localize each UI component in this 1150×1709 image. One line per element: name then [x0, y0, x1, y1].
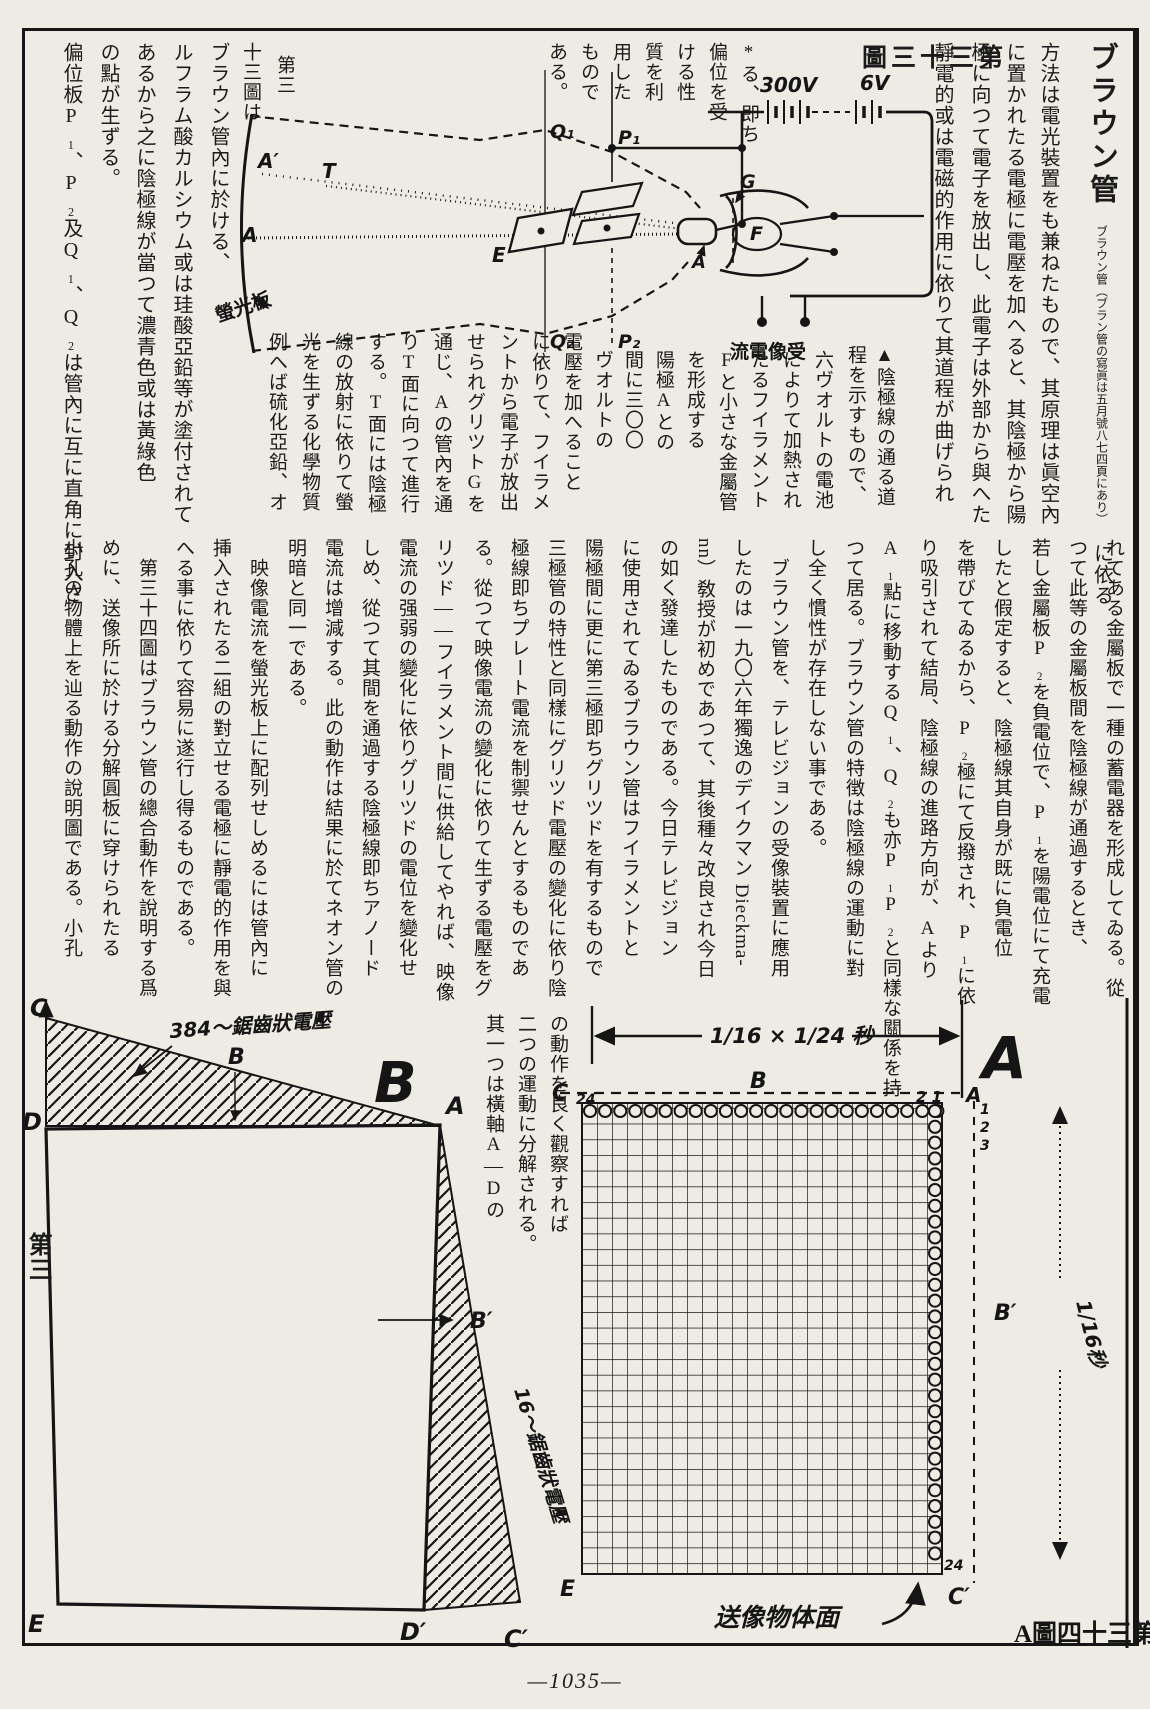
- label-c-prime: C′: [948, 1585, 970, 1610]
- margin-chapter-label: 第三: [24, 1232, 49, 1282]
- text-column: の點が生ずる。: [82, 42, 118, 207]
- text-column: したと假定すると、陰極線其自身が既に負電位: [976, 538, 1011, 1012]
- label-a: A: [444, 1092, 465, 1120]
- title-note: ブラウン管（ブラン管の寫眞は五月號八七四頁にあり）: [1094, 225, 1108, 525]
- text-column: 挿入されたる二組の對立せる電極に靜電的作用を與: [195, 538, 230, 1012]
- figure34a-raster-diagram: 1/16 × 1/24 秒 A C 24 B 2 1 A 24 E C′ 1 2…: [552, 998, 1140, 1660]
- title-column: ブラウン管 ブラウン管（ブラン管の寫眞は五月號八七四頁にあり） に依る: [1086, 42, 1116, 530]
- label-b-prime: B′: [994, 1301, 1017, 1326]
- text-column: あるから之に陰極線が當つて濃青色或は黃綠色: [118, 42, 154, 526]
- text-column: する。T面には陰極: [353, 332, 385, 522]
- label-c: C: [30, 994, 48, 1022]
- text-column: ヴオルトの: [580, 350, 612, 520]
- text-column: めに、送像所に於ける分解圓板に穿けられたる: [84, 538, 119, 1012]
- text-column: 偏位板P₁、P₂及Q₁、Q₂は管內に互に直角に封入さ: [45, 42, 81, 526]
- text-column: たるフイラメント: [736, 350, 768, 520]
- text-column: 電壓を加へること: [549, 332, 581, 522]
- text-column: つて此等の金屬板間を陰極線が通過するとき、: [1051, 538, 1086, 1012]
- label-d: D: [22, 1108, 42, 1136]
- anode-tube: [678, 219, 716, 244]
- wire-node: [738, 144, 746, 152]
- label-c-prime: C′: [504, 1625, 529, 1653]
- label-e: E: [560, 1577, 575, 1602]
- text-column: によりて加熱され: [768, 350, 800, 520]
- label-g: G: [740, 171, 756, 193]
- label-b: B: [228, 1045, 245, 1070]
- text-column: を帶びてゐるから、P₂極にて反撥され、P₁に依: [939, 538, 974, 1012]
- row-number-1: 1: [980, 1102, 990, 1118]
- text-column: しめ、從つて其間を通過する陰極線即ちアノード: [344, 538, 379, 1012]
- label-d-prime: D′: [400, 1618, 427, 1646]
- filament-lead: [780, 244, 834, 252]
- label-a: A: [964, 1083, 981, 1107]
- text-column: ントから電子が放出: [485, 332, 517, 522]
- text-column: に依りて、フイラメ: [517, 332, 549, 522]
- text-column: 第三十四圖はブラウン管の總合動作を說明する爲: [121, 538, 156, 1012]
- image-field-square: [46, 1125, 440, 1610]
- label-b-prime: B′: [470, 1309, 493, 1334]
- text-column: に置かれたる電極に電壓を加へると、其陰極から陽: [988, 42, 1024, 526]
- wire-loop: [790, 112, 932, 296]
- battery-300v: [768, 100, 808, 124]
- text-column: 電流は增減する。此の動作は結果に於てネオン管の: [307, 538, 342, 1012]
- text-column: 若し金屬板P₂を負電位で、P₁を陽電位にて充電: [1014, 538, 1049, 1012]
- label-300v: 300V: [760, 73, 819, 97]
- label-q1: Q₁: [550, 121, 574, 143]
- row-number-3: 3: [980, 1138, 990, 1154]
- text-column: れてある金屬板で一種の蓄電器を形成してゐる。從: [1088, 538, 1123, 1012]
- text-column: 極線即ちプレート電流を制禦せんとするものであ: [493, 538, 528, 1012]
- label-anode-a: A: [690, 252, 706, 273]
- text-column: nn）敎授が初めであつて、其後種々改良され今日: [679, 538, 714, 1012]
- terminal-dot: [800, 317, 810, 327]
- text-column: 小孔の物體上を辿る動作の說明圖である。小孔: [46, 538, 81, 1012]
- text-column: 陽極Aとの: [641, 350, 673, 520]
- text-column: る。從つて映像電流の變化に依りて生ずる電壓をグ: [456, 538, 491, 1012]
- terminal-dot: [757, 317, 767, 327]
- article-title: ブラウン管: [1085, 42, 1117, 207]
- label-frame-time: 1/16 × 1/24 秒: [710, 1024, 876, 1048]
- row-number-2: 2: [980, 1120, 990, 1136]
- figure33-crt-diagram: A′ T A E Q₁ Q₂ P₁ P₂ G F A 300V 6V 螢光板 流…: [230, 56, 990, 368]
- wire-node: [608, 144, 616, 152]
- page-number: —1035—: [0, 1668, 1150, 1694]
- label-6v: 6V: [860, 71, 891, 95]
- text-column: Fと小さな金屬管: [704, 350, 736, 520]
- text-column: つて居る。ブラウン管の特徴は陰極線の運動に對: [828, 538, 863, 1012]
- text-column: の如く發達したものである。今日テレビジョン: [642, 538, 677, 1012]
- text-column: へる事に依りて容易に遂行し得るものである。: [158, 538, 193, 1012]
- raster-grid: [582, 1103, 942, 1574]
- label-t: T: [322, 159, 337, 183]
- text-column: ルフラム酸カルシウム或は珪酸亞鉛等が塗付されて: [155, 42, 191, 526]
- text-column: 程を示すもので、: [833, 345, 865, 520]
- text-column: 陽極間に更に第三極即ちグリツドを有するもので: [567, 538, 602, 1012]
- text-column: 間に三〇〇: [610, 350, 642, 520]
- label-b: B: [750, 1069, 767, 1094]
- label-e: E: [28, 1610, 45, 1638]
- wire-node: [830, 248, 838, 256]
- sawtooth-scan-figure: 384〜鋸齒狀電壓 B B B′ 16〜鋸齒狀電壓 C D A E D′ C′: [22, 992, 542, 1657]
- text-column: ▲陰極線の通る道: [862, 345, 894, 520]
- filament-lead: [780, 216, 834, 224]
- text-column: 光を生ずる化學物質: [287, 332, 319, 522]
- text-column: リツド——フイラメント間に供給してやれば、映像: [418, 538, 453, 1012]
- p-plate-node: [604, 225, 611, 232]
- surface-pointer: [882, 1584, 918, 1624]
- battery-6v: [856, 100, 880, 124]
- text-column: A₁點に移動するQ₁、Q₂も亦P₁P₂と同樣な關係を持: [865, 538, 900, 1012]
- label-scanned-object-surface: 送像物体面: [714, 1603, 844, 1632]
- text-column: 六ヴオルトの電池: [800, 350, 832, 520]
- p-plate-upper: [573, 183, 642, 215]
- text-column: り吸引されて結局、陰極線の進路方向が、Aより: [902, 538, 937, 1012]
- text-column: 通じ、Aの管內を通: [419, 332, 451, 522]
- label-a-prime: A′: [256, 149, 279, 173]
- grid-electrode: [726, 196, 737, 268]
- text-column: りT面に向つて進行: [386, 332, 418, 522]
- text-column: せられグリツトGを: [452, 332, 484, 522]
- text-column: 線の放射に依りて螢: [320, 332, 352, 522]
- magazine-page: ブラウン管 ブラウン管（ブラン管の寫眞は五月號八七四頁にあり） に依る 方法は電…: [0, 0, 1150, 1709]
- text-column: 方法は電光裝置をも兼ねたもので、其原理は眞空內: [1022, 42, 1058, 526]
- text-column: に使用されてゐるブラウン管はフイラメントと: [604, 538, 639, 1012]
- label-big-b: B: [374, 1051, 417, 1116]
- q-plate-node: [538, 228, 545, 235]
- text-column: したのは一九〇六年獨逸のデイクマン Dieckma-: [716, 538, 751, 1012]
- text-column: を形成する: [672, 350, 704, 520]
- label-p1: P₁: [618, 127, 640, 149]
- label-384-sawtooth: 384〜鋸齒狀電壓: [169, 1007, 336, 1043]
- vertical-sweep-wedge: [424, 1125, 520, 1610]
- text-column: 例へば硫化亞鉛、オ: [254, 332, 286, 522]
- text-column: 三極管の特性と同樣にグリツド電壓の變化に依り陰: [530, 538, 565, 1012]
- text-column: ブラウン管內に於ける、: [192, 42, 228, 372]
- text-column: 電流の强弱の變化に依りグリツドの電位を變化せ: [381, 538, 416, 1012]
- label-c: C: [552, 1081, 568, 1106]
- label-f: F: [750, 223, 763, 245]
- label-e: E: [492, 243, 506, 267]
- text-column: し全く慣性が存在しない事である。: [790, 538, 825, 1012]
- label-a: A: [240, 223, 257, 247]
- label-24-bottom: 24: [944, 1558, 963, 1574]
- figure34-caption: A圖四十三第: [1014, 1619, 1150, 1648]
- label-field-time: 1/16秒: [1071, 1297, 1111, 1372]
- text-column: ブラウン管を、テレビジョンの受像裝置に應用: [753, 538, 788, 1012]
- label-big-a: A: [978, 1024, 1027, 1092]
- text-column: 明暗と同一である。: [270, 538, 305, 1012]
- text-column: 映像電流を螢光板上に配列せしめるには管內に: [232, 538, 267, 1012]
